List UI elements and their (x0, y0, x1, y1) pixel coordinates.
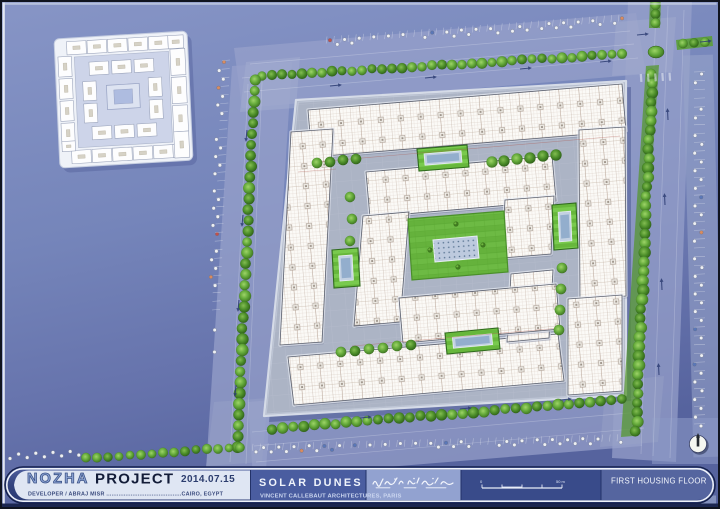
svg-text:NOZHA: NOZHA (27, 471, 90, 487)
svg-text:VINCENT CALLEBAUT ARCHITECTURE: VINCENT CALLEBAUT ARCHITECTURES, PARIS (260, 494, 402, 500)
svg-text:50 m: 50 m (556, 479, 566, 484)
svg-text:2014.07.15: 2014.07.15 (181, 474, 235, 485)
svg-text:FIRST HOUSING FLOOR: FIRST HOUSING FLOOR (611, 477, 707, 486)
svg-text:SOLAR DUNES: SOLAR DUNES (259, 477, 363, 489)
svg-text:DEVELOPER / ABRAJ MISR .......: DEVELOPER / ABRAJ MISR .................… (28, 492, 224, 498)
svg-text:PROJECT: PROJECT (95, 471, 174, 488)
